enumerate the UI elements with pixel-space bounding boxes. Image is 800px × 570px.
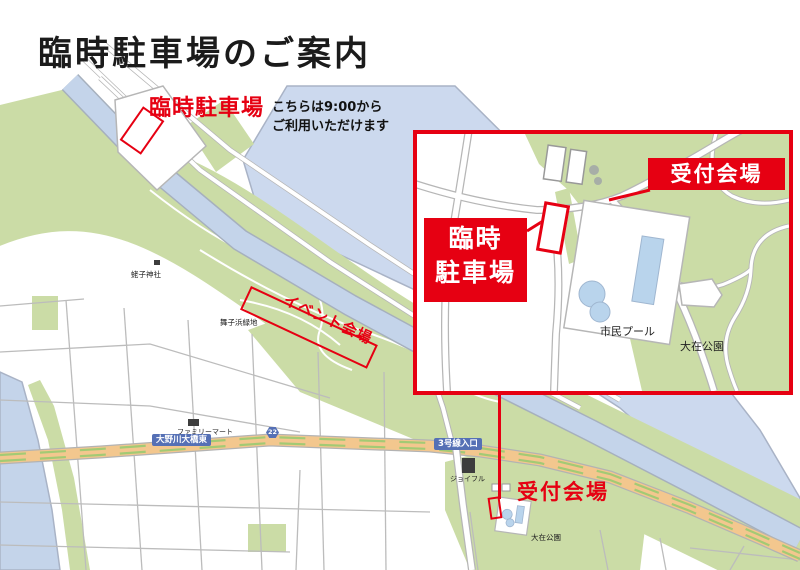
inset-trees-a	[589, 165, 599, 175]
shrine-label: 蛯子神社	[131, 269, 161, 280]
parking-note: こちらは9:00から ご利用いただけます	[272, 99, 389, 137]
familymart-icon	[188, 419, 199, 426]
route3-intersection-sign: 3号線入口	[434, 438, 482, 450]
bridge-intersection-sign: 大野川大橋東	[152, 434, 211, 446]
inset-trees-b	[594, 177, 602, 185]
temp-parking-label: 臨時駐車場	[149, 90, 264, 122]
inset-parking-tag: 臨時 駐車場	[424, 218, 527, 302]
parking-note-line2: ご利用いただけます	[272, 118, 389, 137]
parking-guide-map: 臨時駐車場のご案内 臨時駐車場 こちらは9:00から ご利用いただけます イベン…	[0, 0, 800, 570]
inset-park-label: 大在公園	[680, 338, 724, 354]
shrine-icon	[154, 260, 160, 265]
joyful-icon	[462, 458, 475, 473]
ozai-park-label: 大在公園	[531, 532, 561, 543]
inset-parking-line1: 臨時	[424, 222, 527, 256]
parking-note-line1: こちらは9:00から	[272, 99, 389, 118]
inset-pool-label: 市民プール	[600, 323, 655, 339]
inset-connector-line	[498, 393, 501, 499]
inset-reception-tag: 受付会場	[648, 158, 785, 190]
inset-parking-line2: 駐車場	[424, 256, 527, 290]
reception-area-label: 受付会場	[517, 476, 609, 506]
pool-blob-b	[590, 302, 610, 322]
greenspace-label: 舞子浜緑地	[220, 317, 258, 328]
page-title: 臨時駐車場のご案内	[38, 26, 371, 75]
joyful-label: ジョイフル	[450, 474, 485, 484]
inset-map: 受付会場 臨時 駐車場 市民プール 大在公園	[413, 130, 793, 395]
green-city-block2	[248, 524, 286, 552]
